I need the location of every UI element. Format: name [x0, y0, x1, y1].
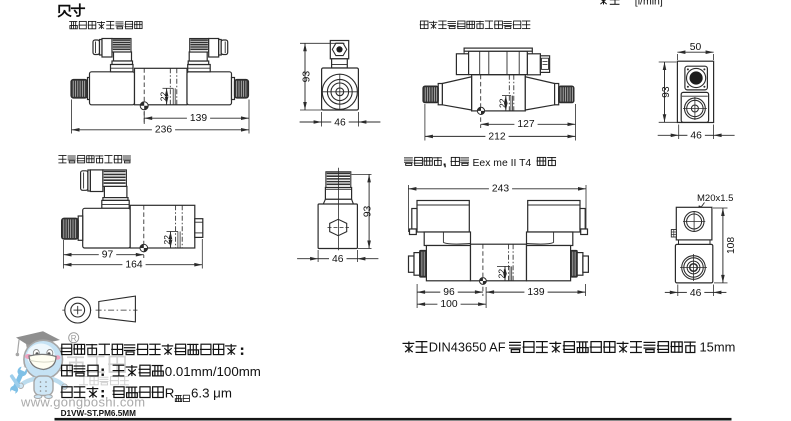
svg-text:46: 46 — [332, 254, 344, 265]
svg-text:50: 50 — [690, 42, 702, 53]
svg-text:[l/min]: [l/min] — [635, 0, 663, 7]
svg-text:M20x1.5: M20x1.5 — [697, 193, 733, 204]
svg-text:97: 97 — [102, 250, 114, 261]
svg-text:22: 22 — [162, 235, 172, 245]
svg-text:46: 46 — [334, 117, 346, 128]
svg-text:212: 212 — [488, 131, 505, 142]
svg-text:D1VW-ST.PM6.5MM: D1VW-ST.PM6.5MM — [61, 409, 137, 418]
svg-text:93: 93 — [302, 71, 313, 83]
svg-text:46: 46 — [690, 288, 702, 299]
svg-text:22: 22 — [497, 98, 507, 108]
svg-text:96: 96 — [443, 287, 455, 298]
svg-text:22: 22 — [158, 92, 168, 102]
svg-text:0.01mm/100mm: 0.01mm/100mm — [165, 364, 261, 379]
svg-text:R: R — [71, 334, 77, 343]
svg-text:93: 93 — [661, 86, 672, 98]
svg-text:108: 108 — [726, 237, 737, 254]
svg-text:243: 243 — [492, 184, 509, 195]
svg-text:R: R — [165, 385, 175, 400]
svg-text:DIN43650 AF: DIN43650 AF — [429, 339, 506, 354]
svg-text:100: 100 — [440, 299, 457, 310]
svg-text:127: 127 — [517, 119, 534, 130]
svg-text:139: 139 — [190, 113, 207, 124]
svg-text:6.3 μm: 6.3 μm — [191, 385, 232, 400]
svg-text:93: 93 — [363, 205, 374, 217]
svg-text:46: 46 — [690, 131, 702, 142]
svg-text:164: 164 — [125, 260, 142, 271]
svg-text:Eex me II T4: Eex me II T4 — [473, 158, 532, 169]
svg-text:22: 22 — [497, 269, 507, 279]
svg-text:139: 139 — [527, 287, 544, 298]
svg-text:15mm: 15mm — [700, 339, 736, 354]
svg-text:236: 236 — [155, 125, 172, 136]
